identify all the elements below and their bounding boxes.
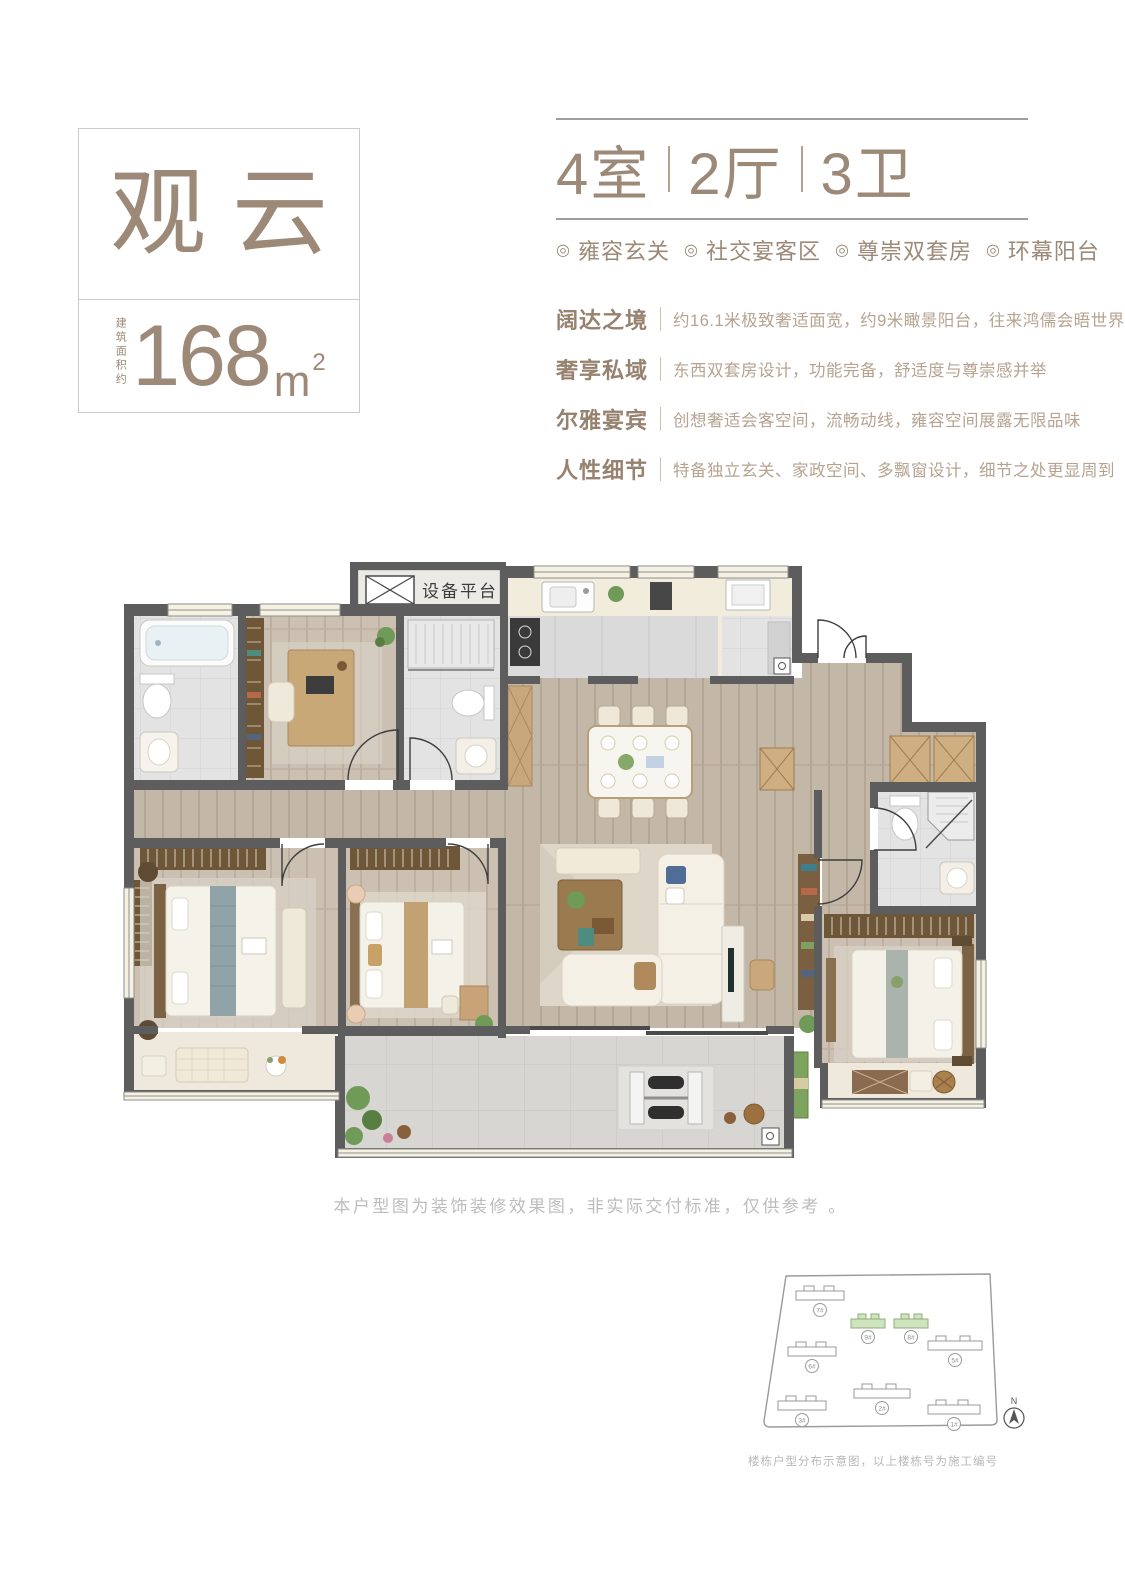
wall [870, 906, 986, 914]
feature-label: 社交宴客区 [706, 234, 821, 266]
shower-icon [408, 620, 494, 668]
bay-window-glazing [822, 1100, 984, 1108]
pillow [910, 1071, 932, 1091]
centerpiece [618, 754, 634, 770]
dining-chair [632, 798, 654, 818]
wall [238, 616, 246, 780]
toilet-icon [452, 690, 484, 716]
tv-icon [728, 948, 734, 992]
sink-icon [148, 739, 170, 765]
wall [976, 722, 986, 1108]
area-unit: m2 [274, 360, 326, 404]
wall [338, 848, 346, 1030]
wall [766, 1026, 794, 1034]
nightstand [138, 862, 158, 882]
selling-point-title: 尔雅宴宾 [556, 403, 648, 435]
selling-point-title: 人性细节 [556, 453, 648, 485]
summary-divider [668, 146, 670, 192]
north-label: N [1011, 1396, 1018, 1406]
dining-chair [598, 798, 620, 818]
wall [870, 782, 986, 792]
wall [130, 780, 345, 790]
feature-label: 雍容玄关 [578, 234, 670, 266]
bed-runner [404, 902, 428, 1008]
selling-point-desc: 特备独立玄关、家政空间、多飘窗设计，细节之处更显周到 [660, 457, 1115, 481]
plant-icon [608, 586, 624, 602]
plate [665, 736, 679, 750]
wall [902, 653, 912, 732]
wall [870, 850, 878, 914]
corridor-floor [134, 790, 514, 838]
building-number: 2# [878, 1405, 886, 1412]
toilet-tank [140, 674, 174, 684]
summary-rooms: 4室 [556, 127, 650, 211]
gym-roller [648, 1106, 684, 1119]
selling-point: 奢享私域 东西双套房设计，功能完备，舒适度与尊崇感并举 [556, 344, 1028, 394]
plant-icon [346, 1086, 370, 1110]
plate [665, 774, 679, 788]
feature-tag: ◎ 尊崇双套房 [835, 234, 972, 266]
header-column: 4室 2厅 3卫 ◎ 雍容玄关 ◎ 社交宴客区 ◎ 尊崇双套房 ◎ 环幕阳台 阔… [556, 118, 1028, 494]
wall [124, 838, 280, 848]
gym-rail [630, 1072, 644, 1124]
bottom-rule [556, 218, 1028, 220]
book [247, 650, 261, 656]
window [124, 888, 134, 998]
column-marker [774, 658, 790, 674]
selling-point-title: 阔达之境 [556, 303, 648, 335]
selling-point-desc: 东西双套房设计，功能完备，舒适度与尊崇感并举 [660, 357, 1047, 381]
wall [506, 1026, 530, 1034]
tray [592, 918, 614, 934]
area-label: 建筑面积约 [112, 317, 128, 395]
pillow [666, 888, 684, 904]
wall [870, 790, 878, 808]
wall [508, 676, 540, 684]
window [638, 566, 694, 578]
nightstand [952, 1056, 972, 1066]
window [534, 566, 630, 578]
wall [490, 838, 506, 848]
plate [601, 774, 615, 788]
book [801, 864, 817, 871]
wall [500, 566, 508, 790]
selling-point-desc: 创想奢适会客空间，流畅动线，雍容空间展露无限品味 [660, 407, 1081, 431]
plant-icon [345, 1127, 363, 1145]
east-baywindow [852, 1070, 955, 1094]
feature-label: 尊崇双套房 [857, 234, 972, 266]
selling-point: 阔达之境 约16.1米极致奢适面宽，约9米瞰景阳台，往来鸿儒会晤世界 [556, 294, 1028, 344]
laundry-basin [732, 585, 764, 605]
faucet-icon [583, 588, 589, 594]
bed-decor [242, 938, 266, 954]
unit-name: 观云 [84, 166, 354, 262]
floorplan-poster: { "palette": { "brand": "#9c8977", "mute… [0, 0, 1125, 1573]
tv-board [826, 958, 836, 1042]
wardrobe [824, 914, 974, 938]
suite-corridor-floor [822, 790, 870, 914]
toilet-icon [143, 684, 171, 718]
plant-icon [375, 637, 385, 647]
wall [902, 722, 986, 732]
building-number: 5# [951, 1357, 959, 1364]
entry-door [818, 620, 866, 658]
pillow [366, 912, 382, 940]
wall [393, 780, 410, 790]
pillow [172, 972, 188, 1004]
building-number: 3# [798, 1417, 806, 1424]
book [247, 734, 261, 740]
dining-chair [632, 706, 654, 726]
desk [460, 986, 488, 1020]
wall [784, 1036, 794, 1158]
desk-lamp [337, 661, 347, 671]
sink-icon [465, 745, 487, 767]
headboard [962, 944, 974, 1064]
wall [792, 653, 818, 663]
area-unit-letter: m [274, 357, 311, 406]
sideboard [508, 686, 532, 786]
siteplan-drawing: 7# 9# 8# 6# 5# 2# 3# 1# N [748, 1270, 1038, 1442]
bullet-icon: ◎ [556, 240, 571, 260]
wall [338, 1026, 506, 1036]
column-marker [762, 1128, 779, 1145]
book [247, 692, 261, 698]
kitchen-sink-basin [550, 587, 576, 607]
plush-toy [347, 885, 365, 903]
bay-window-glazing [124, 1092, 339, 1100]
selling-point: 尔雅宴宾 创想奢适会客空间，流畅动线，雍容空间展露无限品味 [556, 394, 1028, 444]
unit-name-box: 观云 [78, 128, 360, 300]
summary-divider [801, 146, 803, 192]
window [168, 604, 232, 616]
building-number: 1# [950, 1421, 958, 1428]
area-exponent: 2 [312, 351, 325, 375]
feature-tag: ◎ 环幕阳台 [986, 234, 1100, 266]
unit-area-box: 建筑面积约 168 m2 [78, 300, 360, 413]
feature-tag: ◎ 社交宴客区 [684, 234, 821, 266]
bullet-icon: ◎ [684, 240, 699, 260]
drain-icon [155, 640, 161, 646]
pillow [634, 962, 656, 990]
sink-icon [947, 868, 967, 888]
nightstand [952, 936, 972, 946]
toilet-tank [890, 796, 920, 806]
bed-runner [886, 950, 908, 1058]
selling-point-title: 奢享私域 [556, 353, 648, 385]
window [260, 604, 340, 616]
dining-chair [666, 706, 688, 726]
north-arrow-icon: N [1004, 1396, 1024, 1428]
pillow [934, 958, 952, 988]
disclaimer-text: 本户型图为装饰装修效果图，非实际交付标准，仅供参考 。 [0, 1192, 1125, 1217]
east-bedroom [824, 914, 974, 1066]
plush-toy [347, 1005, 365, 1023]
plate [633, 774, 647, 788]
basket [744, 1104, 764, 1124]
plate [601, 736, 615, 750]
selling-point-desc: 约16.1米极致奢适面宽，约9米瞰景阳台，往来鸿儒会晤世界 [660, 307, 1125, 331]
bed-bench [282, 908, 306, 1008]
desk-chair [442, 996, 458, 1014]
dining-chair [666, 798, 688, 818]
feature-label: 环幕阳台 [1008, 234, 1100, 266]
summary-halls: 2厅 [688, 127, 782, 211]
area-value: 168 [132, 313, 270, 399]
ottoman [176, 1048, 248, 1082]
wall [710, 676, 794, 684]
stove-icon [510, 618, 540, 666]
pillow [142, 1056, 166, 1076]
summary-baths: 3卫 [821, 127, 915, 211]
wall [124, 1026, 158, 1034]
feature-tag: ◎ 雍容玄关 [556, 234, 670, 266]
pillow [366, 970, 382, 998]
window [718, 566, 788, 578]
feature-tags: ◎ 雍容玄关 ◎ 社交宴客区 ◎ 尊崇双套房 ◎ 环幕阳台 [556, 234, 1028, 266]
wall [588, 676, 638, 684]
bed-decor [432, 940, 452, 954]
table-cloth [578, 928, 594, 946]
siteplan: 7# 9# 8# 6# 5# 2# 3# 1# N 楼栋户型分布示意图，以上楼栋… [748, 1270, 1038, 1469]
wall [792, 566, 802, 663]
pillow [666, 866, 686, 884]
equipment-label: 设备平台 [422, 582, 498, 601]
stool [750, 960, 774, 990]
bullet-icon: ◎ [986, 240, 1001, 260]
pillow [172, 898, 188, 930]
floorplan: 设备平台 [110, 558, 1035, 1163]
balcony-glazing [338, 1149, 792, 1157]
headboard [154, 884, 166, 1018]
layout-summary: 4室 2厅 3卫 [556, 120, 1028, 218]
building-number: 7# [816, 1307, 824, 1314]
laptop-icon [306, 676, 334, 694]
flower-icon [267, 1057, 273, 1063]
building-number: 8# [907, 1334, 915, 1341]
bed-decor [891, 976, 903, 988]
flower-icon [383, 1133, 393, 1143]
wall [455, 780, 506, 790]
appliance [650, 582, 672, 610]
desk-chair [268, 682, 294, 722]
pot-icon [397, 1125, 411, 1139]
unit-card: 观云 建筑面积约 168 m2 [78, 128, 360, 413]
bench [556, 848, 640, 874]
toilet-tank [484, 686, 494, 720]
gym-roller [648, 1076, 684, 1089]
selling-point: 人性细节 特备独立玄关、家政空间、多飘窗设计，细节之处更显周到 [556, 444, 1028, 494]
table-decor [646, 756, 664, 768]
wall [498, 848, 506, 1038]
wall [396, 616, 404, 780]
building-number: 9# [864, 1334, 872, 1341]
building-number: 6# [808, 1363, 816, 1370]
book [801, 888, 817, 895]
plant-icon [567, 891, 585, 909]
headboard [350, 900, 360, 1010]
flower-icon [278, 1056, 286, 1064]
pillow [368, 944, 382, 966]
gym-rail [688, 1072, 702, 1124]
selling-points: 阔达之境 约16.1米极致奢适面宽，约9米瞰景阳台，往来鸿儒会晤世界 奢享私域 … [556, 294, 1028, 494]
siteplan-caption: 楼栋户型分布示意图，以上楼栋号为施工编号 [748, 1453, 1038, 1469]
floorplan-drawing: 设备平台 [110, 558, 1035, 1163]
wall [325, 838, 446, 848]
dining-chair [598, 706, 620, 726]
wall [814, 906, 822, 1068]
wall [814, 790, 822, 858]
plant-icon [362, 1110, 382, 1130]
wall [350, 562, 506, 570]
pillow [934, 1020, 952, 1050]
plate [633, 736, 647, 750]
window [976, 960, 986, 1048]
wall [124, 604, 134, 1100]
bullet-icon: ◎ [835, 240, 850, 260]
pot-icon [724, 1112, 736, 1124]
